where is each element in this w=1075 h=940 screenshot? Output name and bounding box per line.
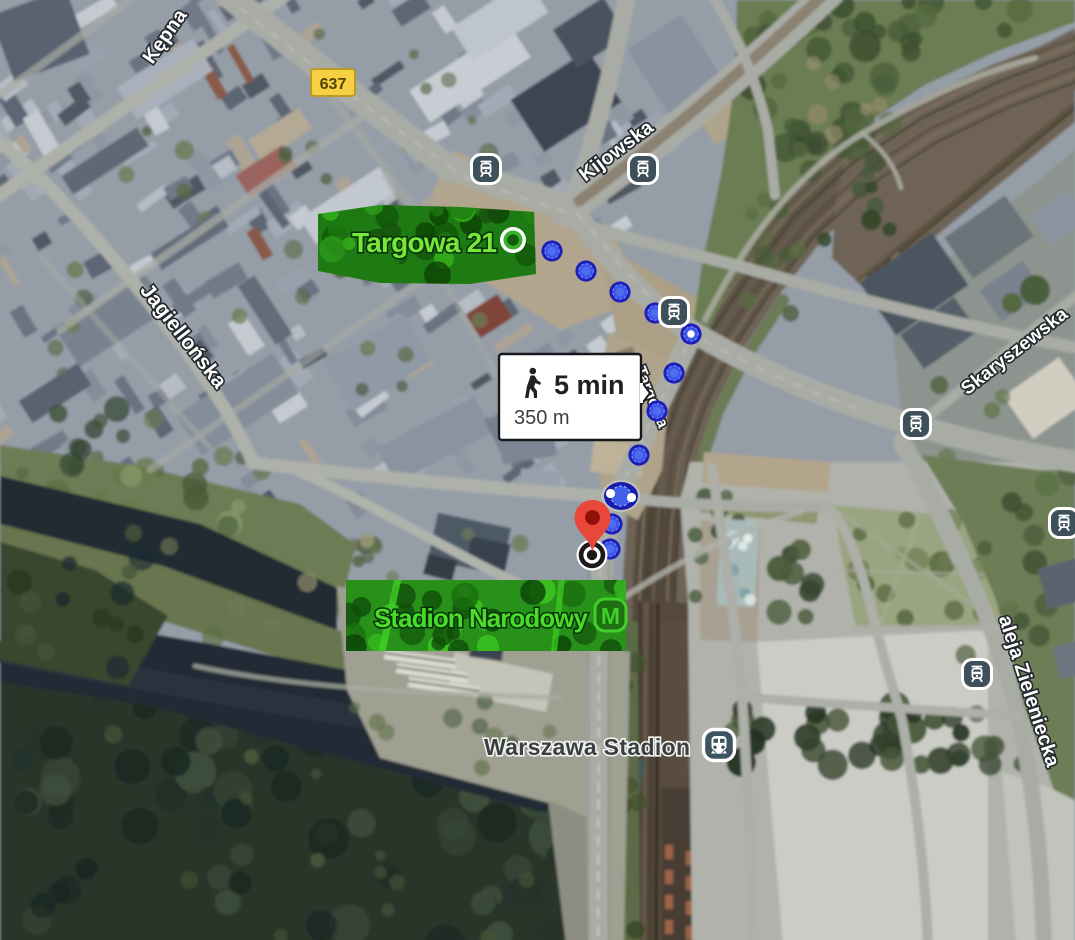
svg-text:350 m: 350 m bbox=[514, 407, 570, 429]
svg-text:Warszawa Stadion: Warszawa Stadion bbox=[484, 734, 690, 760]
svg-text:Stadion Narodowy: Stadion Narodowy bbox=[374, 603, 589, 633]
svg-text:5 min: 5 min bbox=[554, 370, 625, 400]
svg-text:Targowa 21: Targowa 21 bbox=[352, 227, 497, 258]
svg-text:637: 637 bbox=[320, 76, 347, 93]
svg-text:M: M bbox=[601, 603, 620, 629]
